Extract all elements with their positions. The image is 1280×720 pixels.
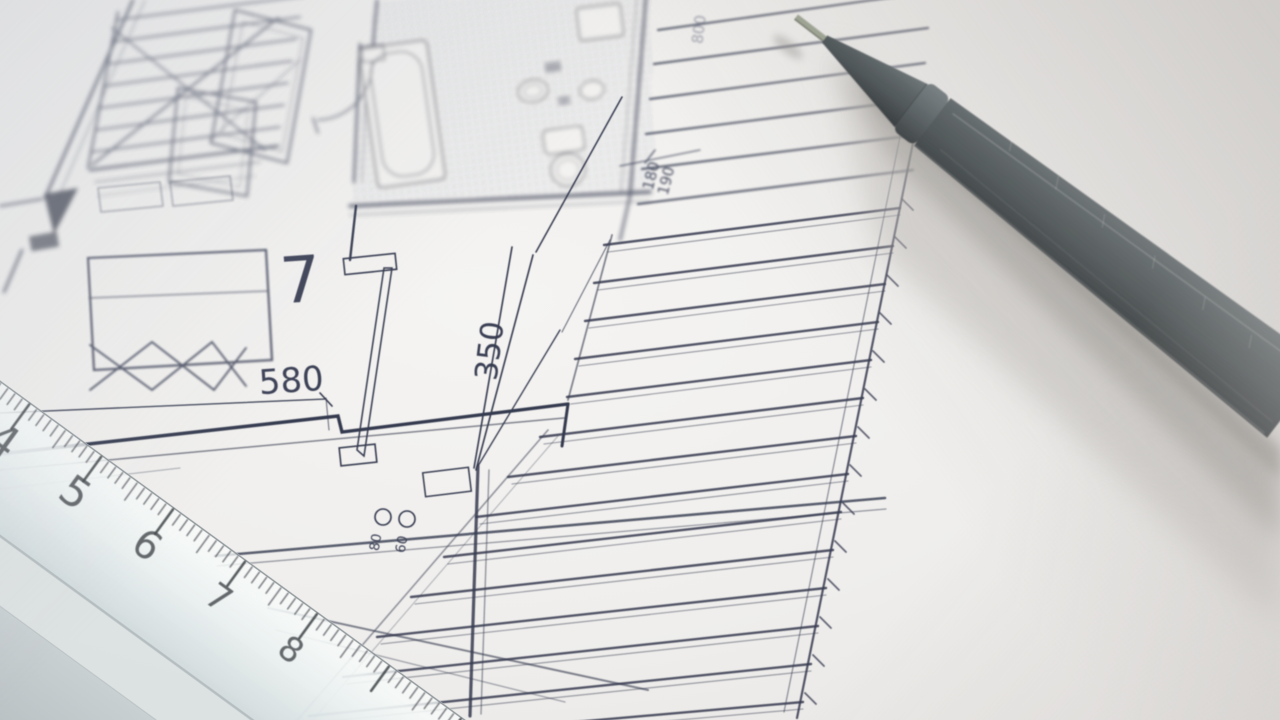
scene-canvas: 180 190 800 7 580 bbox=[0, 0, 1280, 720]
photo-architectural-plan-scene: 180 190 800 7 580 bbox=[0, 0, 1280, 720]
vignette-bottom-right bbox=[0, 0, 1280, 720]
